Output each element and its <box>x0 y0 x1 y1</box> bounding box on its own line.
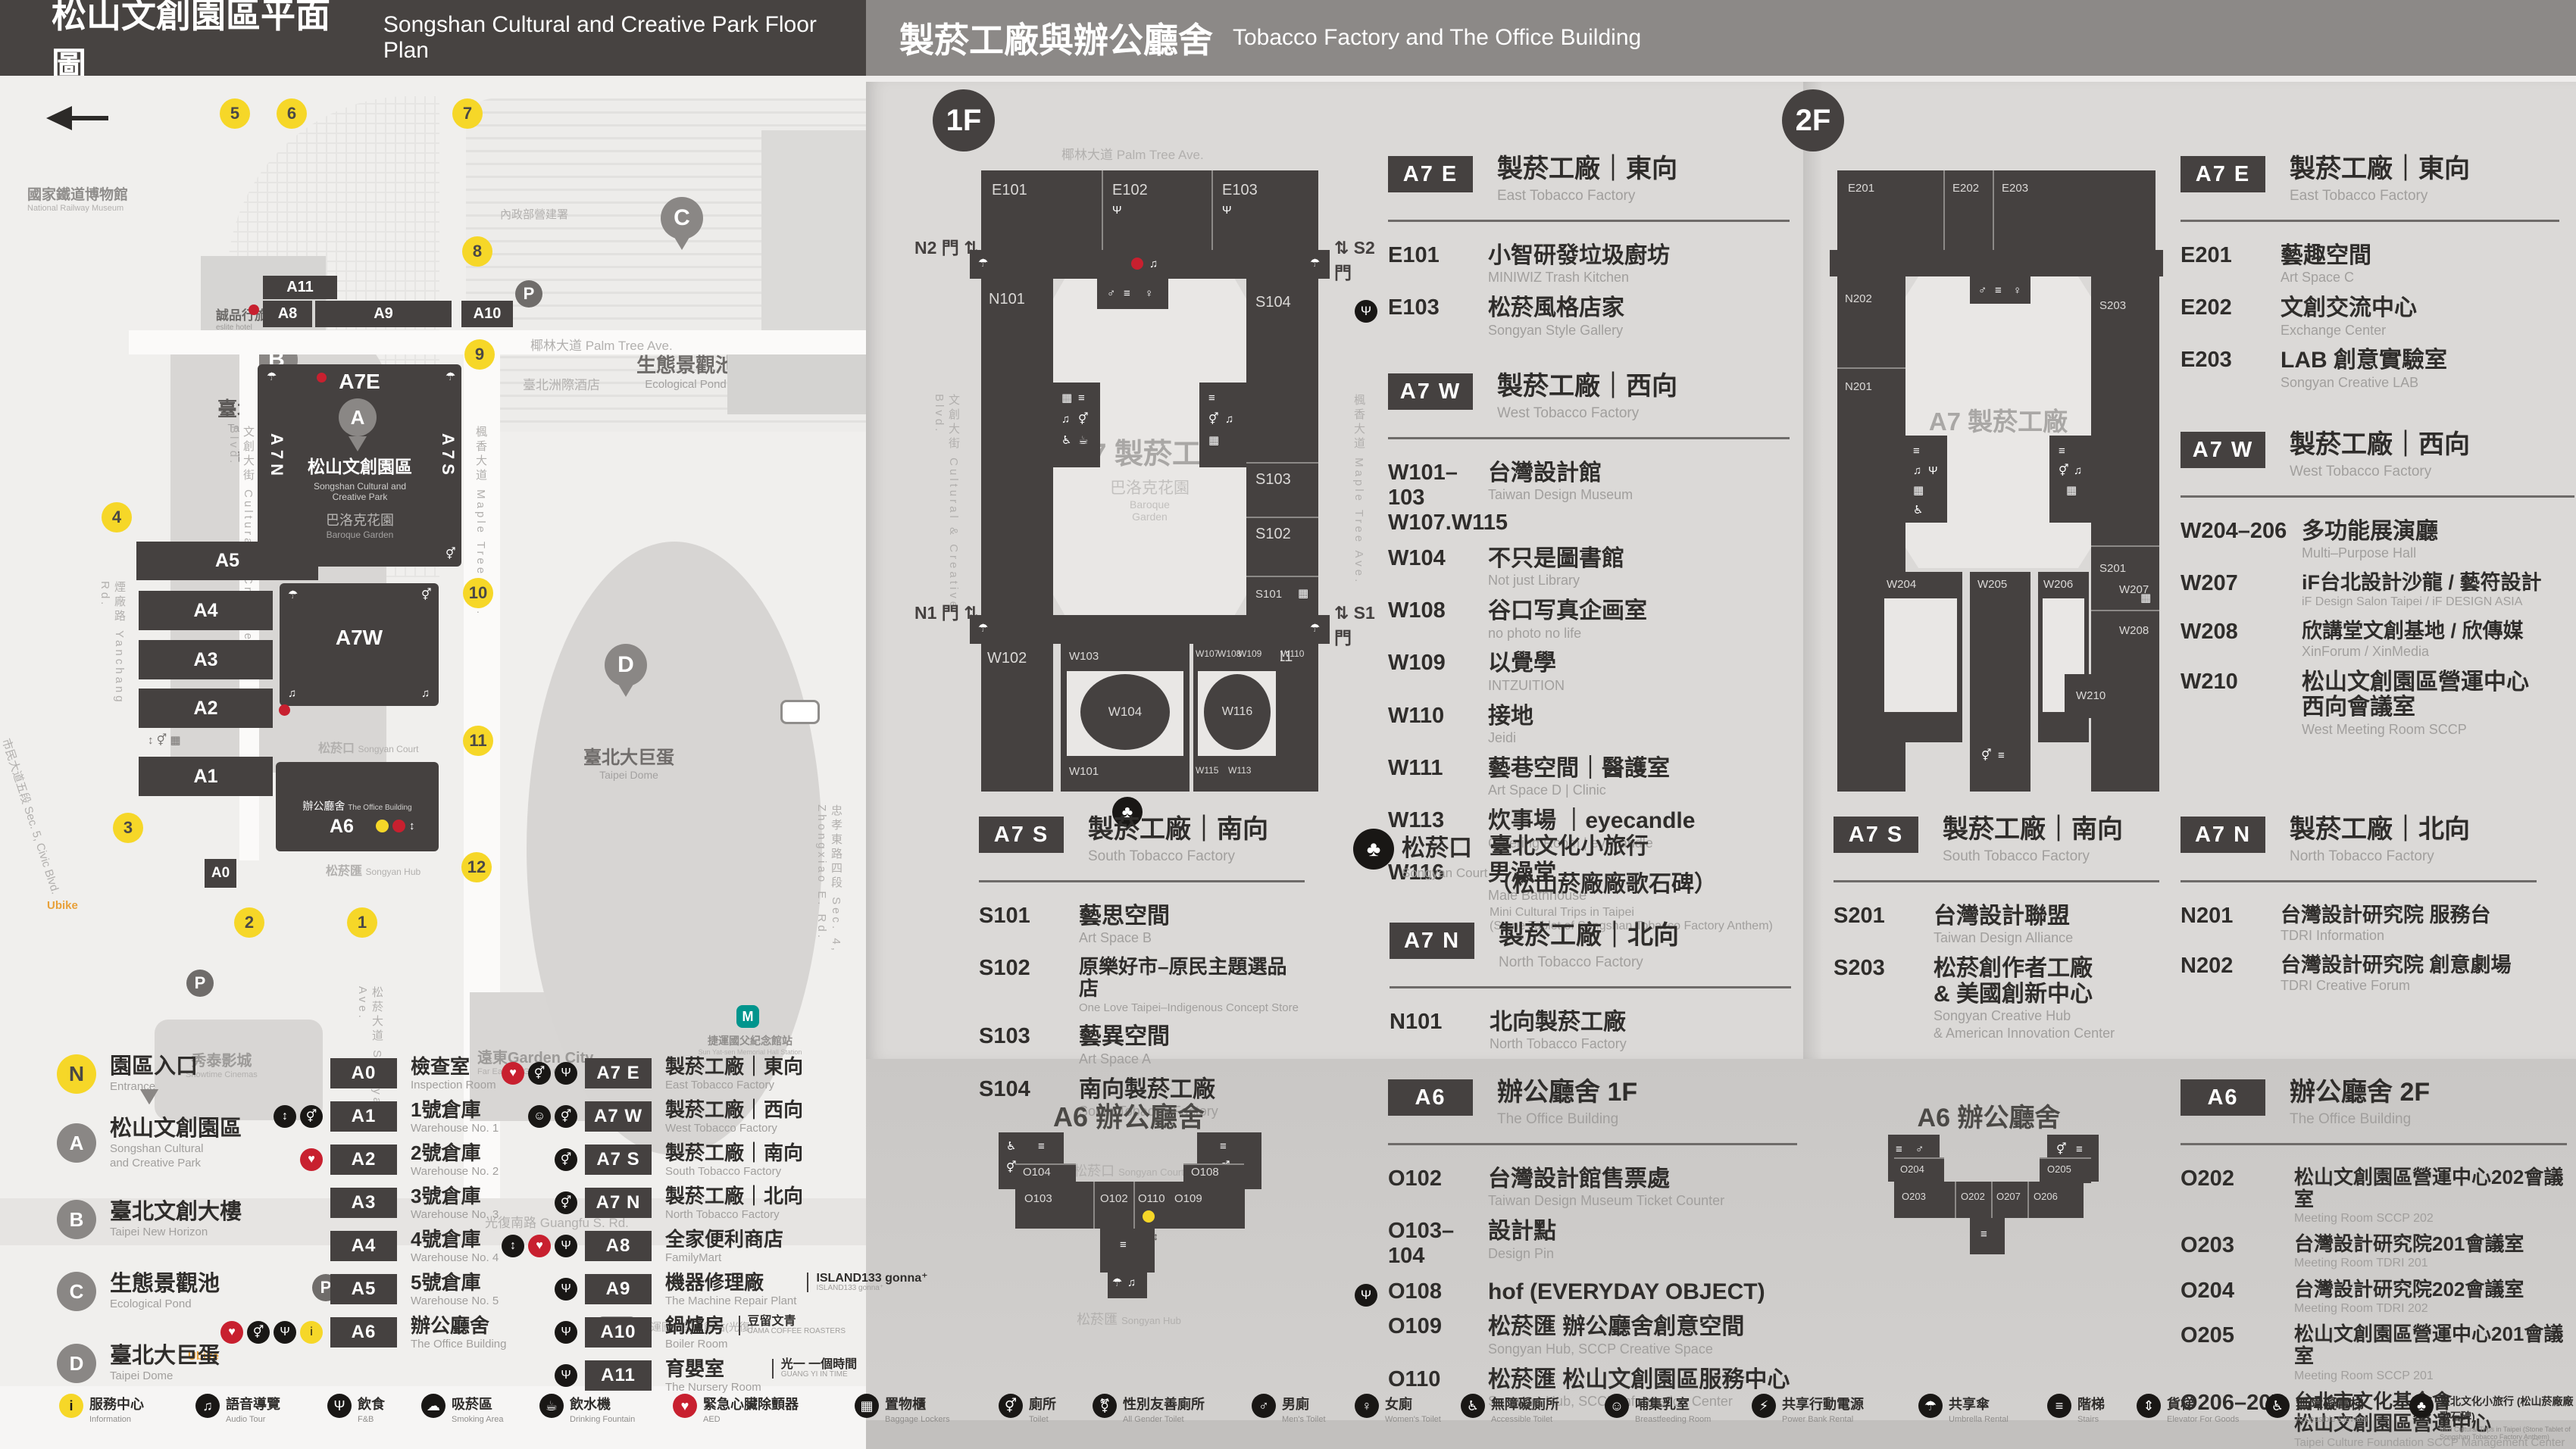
fac-en: Baggage Lockers <box>885 1415 950 1424</box>
legend-zh: 檢查室 <box>411 1057 496 1076</box>
water-icon: ☕ <box>539 1394 564 1418</box>
badge: A0 <box>330 1058 397 1088</box>
legend-zh: 5號倉庫 <box>411 1273 499 1292</box>
item-en: Not just Library <box>1488 573 1624 589</box>
fac-en: Breastfeeding Room <box>1635 1415 1711 1424</box>
fac-en: Drinking Fountain <box>570 1415 635 1424</box>
legend-en2: and Creative Park <box>110 1157 242 1169</box>
block-a2: A2 <box>139 689 273 728</box>
title-en: South Tobacco Factory <box>1943 848 2123 865</box>
park-en2: Creative Park <box>265 492 455 502</box>
list-item-s203: S203 松菸創作者工廠 & 美國創新中心 Songyan Creative H… <box>1834 956 2159 1041</box>
audio-icon: ♫ <box>421 688 430 699</box>
list-item-w204: W204–206 多功能展演廳 Multi–Purpose Hall <box>2181 519 2574 561</box>
facility-accessible-elevator: ♿ 無障礙電梯Accessible Elevator <box>2265 1394 2368 1424</box>
legend-zh: 製菸工廠｜東向 <box>665 1057 803 1076</box>
aed-icon: ♥ <box>300 1148 323 1171</box>
baroque-en: Baroque Garden <box>265 529 455 540</box>
aed-icon: ♥ <box>220 1321 243 1344</box>
badge: A7 S <box>585 1145 652 1175</box>
legend-zh: 臺北文創大樓 <box>110 1201 242 1223</box>
fac-zh: 廁所 <box>1029 1394 1056 1413</box>
brand-zh: 豆留文青 <box>748 1316 846 1328</box>
facility-fnb: Ψ 飲食F&B <box>327 1394 385 1424</box>
title-en: East Tobacco Factory <box>1497 188 1677 205</box>
legend-en: Warehouse No. 4 <box>411 1252 499 1263</box>
legend-zh: 2號倉庫 <box>411 1143 499 1163</box>
item-en: TDRI Information <box>2281 928 2491 944</box>
elevator-icon: ↕ <box>274 1105 296 1128</box>
legend-en: Inspection Room <box>411 1079 496 1091</box>
legend-en: Taipei New Horizon <box>110 1226 242 1238</box>
locker-icon: ▦ <box>1913 485 1924 496</box>
locker-icon: ▦ <box>2066 485 2077 496</box>
facility-men: ♂ 男廁Men's Toilet <box>1252 1394 1326 1424</box>
fac-zh: 哺集乳室 <box>1635 1394 1711 1413</box>
accessible-icon: ♿ <box>1006 1141 1016 1152</box>
item-zh: 欣講堂文創基地 / 欣傳媒 <box>2302 620 2524 642</box>
dome-zh: 臺北大巨蛋 <box>561 742 697 769</box>
section-2f-a7n: A7 N 製菸工廠｜北向 North Tobacco Factory N201 … <box>2181 817 2537 1004</box>
item-zh: 設計點 <box>1488 1219 1556 1244</box>
fac-zh: 飲水機 <box>570 1394 635 1413</box>
legend-a0: A0 檢查室 Inspection Room <box>241 1057 506 1089</box>
item-code: W104 <box>1388 546 1488 589</box>
stairs-icon: ≡ <box>1078 392 1085 404</box>
room-w115: W115 <box>1196 765 1218 776</box>
section-head: A6 辦公廳舍 1F The Office Building <box>1388 1079 1797 1145</box>
entrance-3: 3 <box>113 813 143 843</box>
block-a8: A8 <box>263 301 312 327</box>
room-e102: E102 <box>1112 182 1148 199</box>
fac-zh: 性別友善廁所 <box>1123 1394 1205 1413</box>
room-o109: O109 <box>1174 1192 1202 1205</box>
item-en: Art Space D | Clinic <box>1488 782 1670 798</box>
item-zh: 藝異空間 <box>1079 1024 1170 1050</box>
toilet-icon: ⚥ <box>999 1394 1023 1418</box>
men-icon: ♂ <box>1252 1394 1276 1418</box>
list-item-o203: O203 台灣設計研究院201會議室 Meeting Room TDRI 201 <box>2181 1233 2567 1271</box>
fac-en: Women's Toilet <box>1385 1415 1441 1424</box>
hub-zh: 松菸匯 <box>326 865 362 878</box>
section-head: A7 S 製菸工廠｜南向 South Tobacco Factory <box>1834 817 2159 882</box>
toilet-icon: ⚥ <box>445 548 456 560</box>
f2-center-label: A7 製菸工廠 <box>1905 401 2091 438</box>
wall <box>2091 545 2159 547</box>
section-1f-a7n: A7 N 製菸工廠｜北向 North Tobacco Factory N101 … <box>1390 923 1791 1062</box>
legend-zh: 3號倉庫 <box>411 1186 499 1206</box>
floor1-map: 椰林大道 Palm Tree Ave. 文創大街 Cultural & Crea… <box>925 144 1380 848</box>
wall <box>1246 517 1318 518</box>
list-item-w110: W110 接地 Jeidi <box>1388 704 1790 746</box>
item-en: North Tobacco Factory <box>1490 1036 1627 1052</box>
item-code: W111 <box>1388 756 1488 798</box>
legend-a7n: ⚥ A7 N 製菸工廠｜北向 North Tobacco Factory <box>492 1187 928 1219</box>
entrance-7: 7 <box>452 98 483 129</box>
item-en: iF Design Salon Taipei / iF DESIGN ASIA <box>2302 595 2542 609</box>
room-o103: O103 <box>1024 1192 1052 1205</box>
room-w109: W109 <box>1238 648 1261 659</box>
bus-icon <box>780 700 820 724</box>
legend-col2: ♥ ⚥ Ψ A7 E 製菸工廠｜東向 East Tobacco Factory … <box>492 1057 928 1403</box>
block-a10: A10 <box>461 301 513 327</box>
ubike-text: Ubike <box>47 899 78 912</box>
list-item-w208: W208 欣講堂文創基地 / 欣傳媒 XinForum / XinMedia <box>2181 620 2574 660</box>
right-title-zh: 製菸工廠與辦公廳舍 <box>899 13 1213 63</box>
list-item-n101: N101 北向製菸工廠 North Tobacco Factory <box>1390 1010 1791 1052</box>
icons-a7s: ⚥ <box>492 1148 577 1171</box>
umbrella-icon: ☂ <box>1112 1277 1122 1288</box>
floor1-badge: 1F <box>933 89 995 151</box>
f2-east-wing <box>1837 170 2156 250</box>
pin-d: D <box>605 644 647 686</box>
section-head: A7 W 製菸工廠｜西向 West Tobacco Factory <box>2181 432 2574 498</box>
umbrella-icon: ☂ <box>1310 258 1320 269</box>
badge: A11 <box>585 1360 652 1391</box>
badge-a7s: A7 S <box>979 817 1064 853</box>
info-dot <box>1143 1210 1155 1223</box>
pin-letter: B <box>70 1208 84 1232</box>
stairs-icon: ≡ <box>2076 1144 2083 1155</box>
toilet-icon: ⚥ <box>2056 1144 2067 1155</box>
stairs-icon: ≡ <box>1208 392 1215 404</box>
umbrella-icon: ☂ <box>978 623 988 634</box>
street-zhongxiao: 忠孝東路四段 Sec. 4, Zhongxiao E. Rd. <box>815 804 844 1016</box>
goods-elevator-icon: ⇕ <box>2137 1394 2161 1418</box>
item-code: N101 <box>1390 1010 1490 1052</box>
umbrella-icon: ☂ <box>288 589 298 601</box>
item-zh: 不只是圖書館 <box>1488 546 1624 572</box>
hub-en: Songyan Hub <box>1121 1315 1181 1326</box>
locker-icon: ▦ <box>1061 392 1072 404</box>
toilet-icon: ⚥ <box>1208 414 1219 425</box>
stairs-icon: ≡ <box>1038 1141 1045 1152</box>
legend-zh: 製菸工廠｜西向 <box>665 1100 803 1120</box>
entrance-2: 2 <box>234 907 264 938</box>
room-w103: W103 <box>1069 650 1099 663</box>
food-icon: Ψ <box>555 1321 577 1344</box>
parking-icon: P <box>186 970 214 997</box>
list-item-w207: W207 iF台北設計沙龍 / 藝符設計 iF Design Salon Tai… <box>2181 571 2574 610</box>
fac-en: All Gender Toilet <box>1123 1415 1205 1424</box>
allgender-icon: ⚧ <box>1093 1394 1117 1418</box>
left-title-en: Songshan Cultural and Creative Park Floo… <box>383 12 866 64</box>
room-e201: E201 <box>1848 182 1874 195</box>
section-2f-a7s: A7 S 製菸工廠｜南向 South Tobacco Factory S201 … <box>1834 817 2159 1051</box>
toilet-icon: ⚥ <box>1981 750 1992 761</box>
f1-street-palm: 椰林大道 Palm Tree Ave. <box>1061 144 1204 163</box>
pin-letter: A <box>70 1132 84 1155</box>
a6-1f-map-title: A6 辦公廳舍 <box>985 1095 1273 1135</box>
umbrella-icon: ☂ <box>267 371 277 383</box>
smoking-icon: ☁ <box>421 1394 445 1418</box>
legend-a1: ↕ ⚥ A1 1號倉庫 Warehouse No. 1 <box>241 1101 506 1132</box>
item-code: O203 <box>2181 1233 2294 1271</box>
item-code: W109 <box>1388 651 1488 693</box>
room-n201: N201 <box>1845 380 1872 393</box>
title-zh: 製菸工廠｜東向 <box>2290 156 2470 183</box>
list-item-e101: E101 小智研發垃圾廚坊 MINIWIZ Trash Kitchen <box>1388 243 1790 286</box>
item-en: Meeting Room TDRI 201 <box>2294 1257 2524 1270</box>
badge-a6: A6 <box>2181 1079 2265 1116</box>
fac-zh: 飲食 <box>358 1394 385 1413</box>
item-code: W210 <box>2181 670 2302 738</box>
fac-en: Umbrella Rental <box>1949 1415 2009 1424</box>
water-icon: ☕ <box>1078 435 1088 446</box>
room-e101: E101 <box>992 182 1027 199</box>
fac-en: F&B <box>358 1415 385 1424</box>
toilet-icon: ⚥ <box>555 1191 577 1214</box>
aed-dot <box>317 373 327 383</box>
item-code: E203 <box>2181 348 2281 390</box>
badge: A7 W <box>585 1101 652 1132</box>
wall <box>1211 170 1213 250</box>
umbrella-icon: ☂ <box>445 371 455 383</box>
item-zh: 藝思空間 <box>1079 904 1170 929</box>
facility-stairs: ≡ 階梯Stairs <box>2047 1394 2105 1424</box>
f1-baroque-en2: Garden <box>1053 511 1246 523</box>
accessible-elevator-icon: ♿ <box>2265 1394 2290 1418</box>
agency-block <box>761 130 866 339</box>
mrt-icon: M <box>736 1005 759 1028</box>
agency-label: 內政部營建署 <box>500 206 568 222</box>
updown-icon: ⇅ <box>1334 603 1349 623</box>
floor-plan-poster: 松山文創園區平面圖 Songshan Cultural and Creative… <box>0 0 2576 1449</box>
f2-right-notch <box>2049 436 2091 523</box>
icons-a9: Ψ <box>492 1278 577 1301</box>
title-zh: 製菸工廠｜北向 <box>2290 817 2470 844</box>
audio-icon: ♫ <box>2074 465 2082 476</box>
title-zh: 辦公廳舍 1F <box>1497 1079 1637 1107</box>
entrance-6: 6 <box>277 98 307 129</box>
room-s203: S203 <box>2099 299 2126 312</box>
a7w-label: A7W <box>280 626 439 650</box>
legend-zh: 製菸工廠｜北向 <box>665 1186 803 1206</box>
fac-zh: 無障礙電梯 <box>2296 1394 2368 1413</box>
badge: A8 <box>585 1231 652 1261</box>
aed-dot <box>249 304 259 315</box>
court-desc: 臺北文化小旅行 （松山菸廠廠歌石碑） Mini Cultural Trips i… <box>1490 827 1800 933</box>
a6-2f-stem <box>1970 1218 2005 1254</box>
railway-zh: 國家鐵道博物館 <box>27 183 128 204</box>
toilet-icon: ⚥ <box>555 1148 577 1171</box>
a6-2f-map-title: A6 辦公廳舍 <box>1879 1097 2099 1134</box>
f1-east-wing <box>981 170 1318 250</box>
f2-north-corridor <box>1830 250 2163 276</box>
title-en: South Tobacco Factory <box>1088 848 1268 865</box>
icons-a10: Ψ <box>492 1321 577 1344</box>
item-en2: & American Innovation Center <box>1934 1026 2115 1041</box>
a6-office-zh: 辦公廳舍 <box>302 800 345 812</box>
a6-1f-court-label: 松菸口 Songyan Court <box>1057 1160 1201 1180</box>
court-zh: 松菸口 <box>1402 829 1487 863</box>
badge: A4 <box>330 1231 397 1261</box>
street-palm: 椰林大道 Palm Tree Ave. <box>530 335 673 354</box>
umbrella-icon: ☂ <box>1918 1394 1943 1418</box>
item-code: O103–104 <box>1388 1219 1488 1269</box>
f1-south-corridor <box>970 615 1330 644</box>
fac-zh: 貨梯 <box>2167 1394 2239 1413</box>
item-zh: 松菸創作者工廠 <box>1934 956 2115 982</box>
badge: A6 <box>330 1317 397 1348</box>
badge-a7n: A7 N <box>1390 923 1474 959</box>
room-n202: N202 <box>1845 292 1872 305</box>
a7e-label: A7E <box>258 370 461 394</box>
toilet-icon: ⚥ <box>1078 414 1089 425</box>
fac-en: Stairs <box>2077 1415 2105 1424</box>
legend-en: The Nursery Room <box>665 1382 761 1393</box>
room-o204: O204 <box>1900 1163 1924 1175</box>
list-item-e103: Ψ E103 松菸風格店家 Songyan Style Gallery <box>1388 295 1790 338</box>
baroque-zh: 巴洛克花園 <box>265 510 455 529</box>
item-en: West Meeting Room SCCP <box>2302 722 2529 738</box>
wall <box>1991 1182 1993 1218</box>
audio-icon: ♫ <box>1913 465 1921 476</box>
badge-a7w: A7 W <box>2181 432 2265 468</box>
songyan-court-icon: ♣ <box>1353 829 1394 870</box>
legend-a4: A4 4號倉庫 Warehouse No. 4 <box>241 1230 506 1262</box>
f2-w204-yard <box>1884 598 1957 712</box>
left-title-zh: 松山文創園區平面圖 <box>52 0 364 88</box>
item-code: S101 <box>979 904 1079 946</box>
room-o205: O205 <box>2047 1163 2071 1175</box>
entrance-5: 5 <box>220 98 250 129</box>
legend-a6: ♥ ⚥ Ψ i A6 辦公廳舍 The Office Building <box>241 1316 506 1348</box>
pin-b-icon: B <box>57 1200 96 1239</box>
hub-label: 松菸匯 Songyan Hub <box>326 860 420 879</box>
item-en: Songyan Creative Hub <box>1934 1008 2115 1024</box>
block-a11: A11 <box>263 276 337 299</box>
fac-en: AED <box>703 1415 799 1424</box>
title-en: North Tobacco Factory <box>1499 954 1679 971</box>
list-item-e203: E203 LAB 創意實驗室 Songyan Creative LAB <box>2181 348 2559 390</box>
list-item-o205: O205 松山文創園區營運中心201會議室 Meeting Room SCCP … <box>2181 1323 2567 1383</box>
badge-a7e: A7 E <box>1388 156 1473 192</box>
wall <box>1102 170 1103 250</box>
entrance-9: 9 <box>464 339 495 370</box>
brand-en: ISLAND133 gonna⁺ <box>816 1285 927 1292</box>
women-icon: ♀ <box>2013 285 2021 296</box>
legend-en: West Tobacco Factory <box>665 1123 803 1134</box>
item-code: N201 <box>2181 904 2281 944</box>
brand-en: CAMA COFFEE ROASTERS <box>748 1328 846 1335</box>
item-en: Meeting Room SCCP 202 <box>2294 1212 2567 1226</box>
fac-zh: 階梯 <box>2077 1394 2105 1413</box>
item-code: W208 <box>2181 620 2302 660</box>
fac-zh: 男廁 <box>1282 1394 1326 1413</box>
list-item-n202: N202 台灣設計研究院 創意劇場 TDRI Creative Forum <box>2181 954 2537 994</box>
block-a5: A5 <box>136 542 318 580</box>
a6-1f-hub-label: 松菸匯 Songyan Hub <box>1057 1309 1201 1329</box>
list-item-s102: S102 原樂好市–原民主題選品店 One Love Taipei–Indige… <box>979 956 1305 1014</box>
icons-a11: Ψ <box>492 1364 577 1387</box>
item-en: Meeting Room SCCP 201 <box>2294 1369 2567 1383</box>
item-code: W110 <box>1388 704 1488 746</box>
stairs-icon: ≡ <box>2059 445 2065 457</box>
section-head: A7 S 製菸工廠｜南向 South Tobacco Factory <box>979 817 1305 882</box>
facility-toilet: ⚥ 廁所Toilet <box>999 1394 1056 1424</box>
a6-label: A6 <box>330 816 354 838</box>
accessible-icon: ♿ <box>1461 1394 1485 1418</box>
legend-zh: 生態景觀池 <box>110 1273 220 1295</box>
umbrella-icon: ☂ <box>1310 623 1320 634</box>
badge-a7e: A7 E <box>2181 156 2265 192</box>
list-item-s101: S101 藝思空間 Art Space B <box>979 904 1305 946</box>
a6-office-label: 辦公廳舍 The Office Building <box>276 798 439 814</box>
icons-a8: ↕ ♥ Ψ <box>492 1235 577 1257</box>
a6-1f-stem <box>1100 1229 1155 1273</box>
pin-letter: C <box>70 1280 84 1304</box>
badge: A2 <box>330 1145 397 1175</box>
pin-c: C <box>661 197 703 239</box>
room-s102: S102 <box>1255 526 1291 543</box>
room-w101: W101 <box>1069 765 1099 778</box>
legend-zh: 松山文創園區 <box>110 1118 242 1140</box>
section-1f-a7s: A7 S 製菸工廠｜南向 South Tobacco Factory S101 … <box>979 817 1305 1129</box>
fac-en: Accessible Elevator <box>2296 1415 2368 1424</box>
stairs-icon: ≡ <box>1124 288 1130 299</box>
item-code: S201 <box>1834 904 1934 946</box>
f1-right-notch <box>1199 383 1246 467</box>
item-code: O108 <box>1388 1279 1488 1305</box>
block-a9: A9 <box>315 301 452 327</box>
legend-a11: Ψ A11 育嬰室 The Nursery Room 光一 一個時間 GUANG… <box>492 1360 928 1391</box>
court-zh: 松菸口 <box>318 742 355 755</box>
food-icon: Ψ <box>555 1235 577 1257</box>
legend-a8: ↕ ♥ Ψ A8 全家便利商店 FamilyMart <box>492 1230 928 1262</box>
food-icon: Ψ <box>327 1394 352 1418</box>
north-arrow-icon <box>34 106 72 130</box>
updown-icon: ⇅ <box>964 603 978 623</box>
item-zh: 台灣設計研究院202會議室 <box>2294 1279 2524 1301</box>
court-title1: 臺北文化小旅行 <box>1490 827 1800 860</box>
stairs-icon: ≡ <box>1220 1141 1227 1152</box>
entrance-11: 11 <box>463 726 493 756</box>
item-zh: 多功能展演廳 <box>2302 519 2438 545</box>
food-icon: Ψ <box>1928 465 1938 476</box>
title-zh: 製菸工廠｜西向 <box>2290 432 2470 459</box>
legend-en: Warehouse No. 3 <box>411 1209 499 1220</box>
item-en: Multi–Purpose Hall <box>2302 545 2438 561</box>
wall <box>1955 1182 1956 1218</box>
item-en: Art Space B <box>1079 930 1170 946</box>
toilet-icon: ⚥ <box>157 734 167 747</box>
facility-lockers: ▦ 置物櫃Baggage Lockers <box>855 1394 950 1424</box>
item-zh: 松菸風格店家 <box>1488 295 1624 321</box>
food-icon: Ψ <box>1355 1284 1377 1307</box>
elevator-icon: ↕ <box>409 820 415 832</box>
locker-icon: ▦ <box>1208 435 1219 446</box>
f1-west-wing <box>981 279 1053 792</box>
court-zh: 松菸口 <box>1074 1163 1114 1179</box>
toilet-icon: ⚥ <box>421 589 432 601</box>
list-item-e201: E201 藝趣空間 Art Space C <box>2181 243 2559 286</box>
info-icon: i <box>59 1394 83 1418</box>
stairs-icon: ≡ <box>1896 1144 1902 1155</box>
legend-zh: 4號倉庫 <box>411 1229 499 1249</box>
park-en1: Songshan Cultural and <box>265 481 455 492</box>
item-zh: 藝巷空間｜醫護室 <box>1488 756 1670 782</box>
wall <box>2091 610 2159 611</box>
panel-split-shade <box>1803 82 1823 1059</box>
right-title-en: Tobacco Factory and The Office Building <box>1233 25 1641 51</box>
item-zh: 松菸匯 辦公廳舍創意空間 <box>1488 1314 1744 1340</box>
women-icon: ♀ <box>1145 288 1153 299</box>
ubike-label: Ubike <box>47 899 78 912</box>
audio-icon: ♫ <box>1127 1277 1136 1288</box>
fac-en: Power Bank Rental <box>1782 1415 1864 1424</box>
fac-en: Toilet <box>1029 1415 1056 1424</box>
